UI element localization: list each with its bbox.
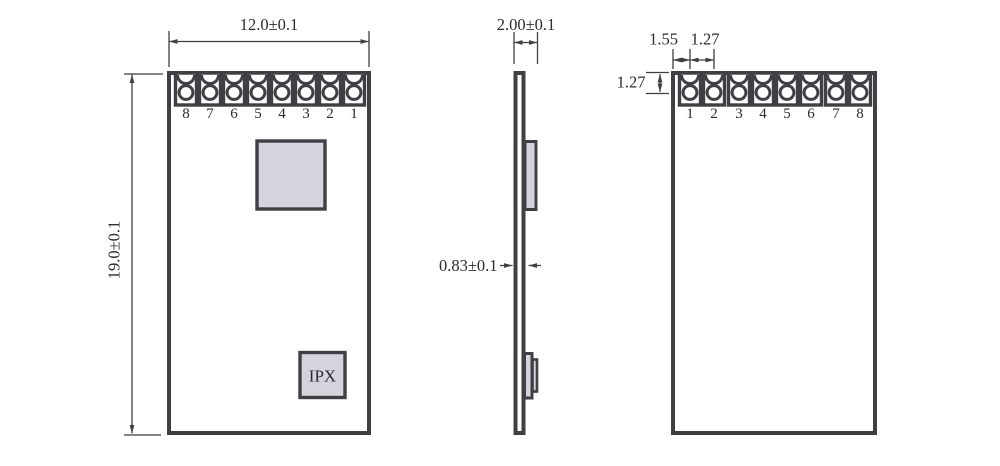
- pcb-profile: [516, 73, 524, 433]
- pin-number-label: 6: [230, 106, 238, 122]
- pin-number-label: 6: [807, 106, 815, 122]
- pin-castellation: [176, 73, 197, 105]
- pin-castellation: [777, 73, 798, 105]
- pin-castellation: [224, 73, 245, 105]
- chip-profile: [525, 142, 536, 210]
- pin-castellation: [200, 73, 221, 105]
- pin-number-label: 1: [350, 106, 358, 122]
- back-hole-offset-dimension: 1.27: [617, 73, 669, 94]
- front-width-dimension: 12.0±0.1: [169, 15, 369, 67]
- ipx-label: IPX: [309, 367, 336, 386]
- pin-number-label: 8: [856, 106, 864, 122]
- pin-number-label: 1: [686, 106, 694, 122]
- hole-offset-label: 1.27: [617, 73, 646, 92]
- side-view: 2.00±0.1 0.83±0.1: [439, 15, 555, 433]
- back-view: 1 2 3 4 5 6 7 8 1.55 1.27 1.27: [617, 30, 875, 434]
- drawing-canvas: 8 7 6 5 4 3 2 1 IPX 12.0±0.1 19.0±0.1: [0, 0, 1000, 466]
- height-dimension-label: 19.0±0.1: [105, 221, 124, 280]
- width-dimension-label: 12.0±0.1: [240, 15, 299, 34]
- pin-number-label: 3: [302, 106, 310, 122]
- side-thickness-dimension: 2.00±0.1: [497, 15, 556, 64]
- pin-castellation: [801, 73, 822, 105]
- pin-castellation: [704, 73, 725, 105]
- pin-number-label: 7: [832, 106, 840, 122]
- edge-to-pin1-label: 1.55: [649, 30, 678, 49]
- front-height-dimension: 19.0±0.1: [105, 74, 164, 435]
- module-dimension-drawing: 8 7 6 5 4 3 2 1 IPX 12.0±0.1 19.0±0.1: [0, 0, 1000, 466]
- pcb-thickness-label: 0.83±0.1: [439, 256, 498, 275]
- overall-thickness-label: 2.00±0.1: [497, 15, 556, 34]
- pin-castellation: [680, 73, 701, 105]
- pin-castellation: [753, 73, 774, 105]
- pin-castellation: [826, 73, 847, 105]
- pin-number-label: 2: [710, 106, 718, 122]
- pin-castellation: [320, 73, 341, 105]
- pin-number-label: 4: [278, 106, 286, 122]
- back-pin-spacing-dimension: 1.55 1.27: [649, 30, 719, 70]
- pin-number-label: 5: [783, 106, 791, 122]
- front-view: 8 7 6 5 4 3 2 1 IPX 12.0±0.1 19.0±0.1: [105, 15, 370, 435]
- ipx-profile-base: [525, 354, 533, 399]
- pin-pitch-label: 1.27: [691, 30, 720, 49]
- pin-castellation: [272, 73, 293, 105]
- pin-castellation: [248, 73, 269, 105]
- pin-number-label: 5: [254, 106, 262, 122]
- pcb-thickness-dimension: 0.83±0.1: [439, 256, 541, 275]
- pin-number-label: 7: [206, 106, 214, 122]
- pin-castellation: [850, 73, 871, 105]
- pin-number-label: 8: [182, 106, 190, 122]
- shield-chip: [257, 141, 325, 209]
- pin-castellation: [296, 73, 317, 105]
- pin-castellation: [344, 73, 365, 105]
- pin-castellation: [729, 73, 750, 105]
- module-outline-back: [673, 73, 875, 433]
- ipx-profile-tip: [533, 360, 538, 392]
- pin-number-label: 3: [735, 106, 743, 122]
- pin-number-label: 4: [759, 106, 767, 122]
- pin-number-label: 2: [326, 106, 334, 122]
